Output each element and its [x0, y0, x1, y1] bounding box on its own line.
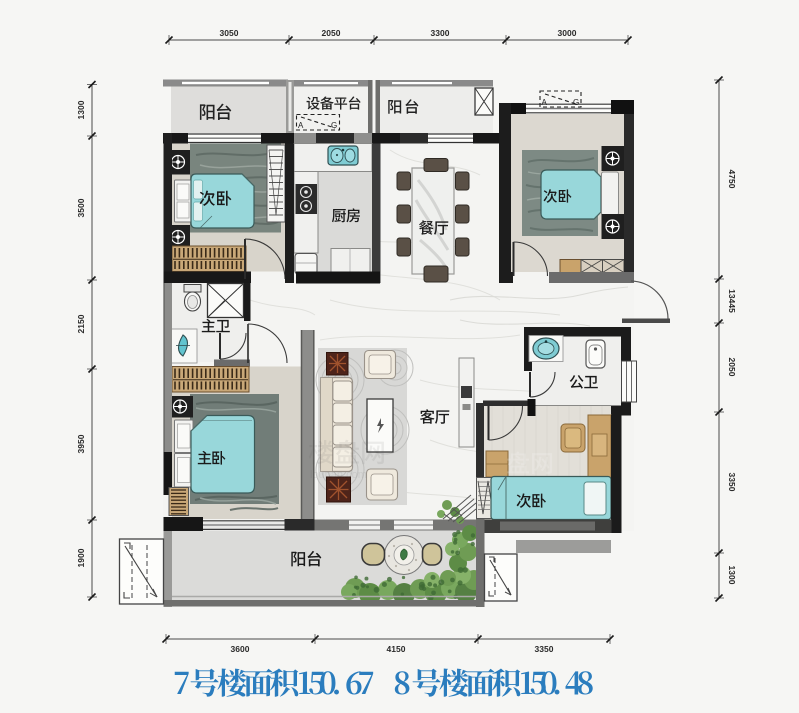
svg-text:G: G	[331, 121, 337, 130]
svg-text:13445: 13445	[727, 289, 737, 313]
svg-text:4750: 4750	[727, 170, 737, 189]
svg-text:A: A	[542, 98, 548, 107]
svg-text:4150: 4150	[387, 644, 406, 654]
svg-text:A: A	[298, 121, 304, 130]
svg-text:2150: 2150	[76, 314, 86, 333]
svg-text:3350: 3350	[535, 644, 554, 654]
svg-text:3050: 3050	[220, 28, 239, 38]
svg-text:loupan.com: loupan.com	[310, 469, 367, 481]
svg-text:3600: 3600	[231, 644, 250, 654]
svg-text:1300: 1300	[727, 566, 737, 585]
svg-text:3000: 3000	[558, 28, 577, 38]
svg-text:3500: 3500	[76, 198, 86, 217]
svg-text:3300: 3300	[431, 28, 450, 38]
svg-text:1300: 1300	[76, 100, 86, 119]
svg-text:G: G	[573, 98, 579, 107]
svg-text:2050: 2050	[322, 28, 341, 38]
svg-text:1900: 1900	[76, 548, 86, 567]
svg-text:3350: 3350	[727, 473, 737, 492]
svg-text:2050: 2050	[727, 358, 737, 377]
svg-text:3950: 3950	[76, 434, 86, 453]
